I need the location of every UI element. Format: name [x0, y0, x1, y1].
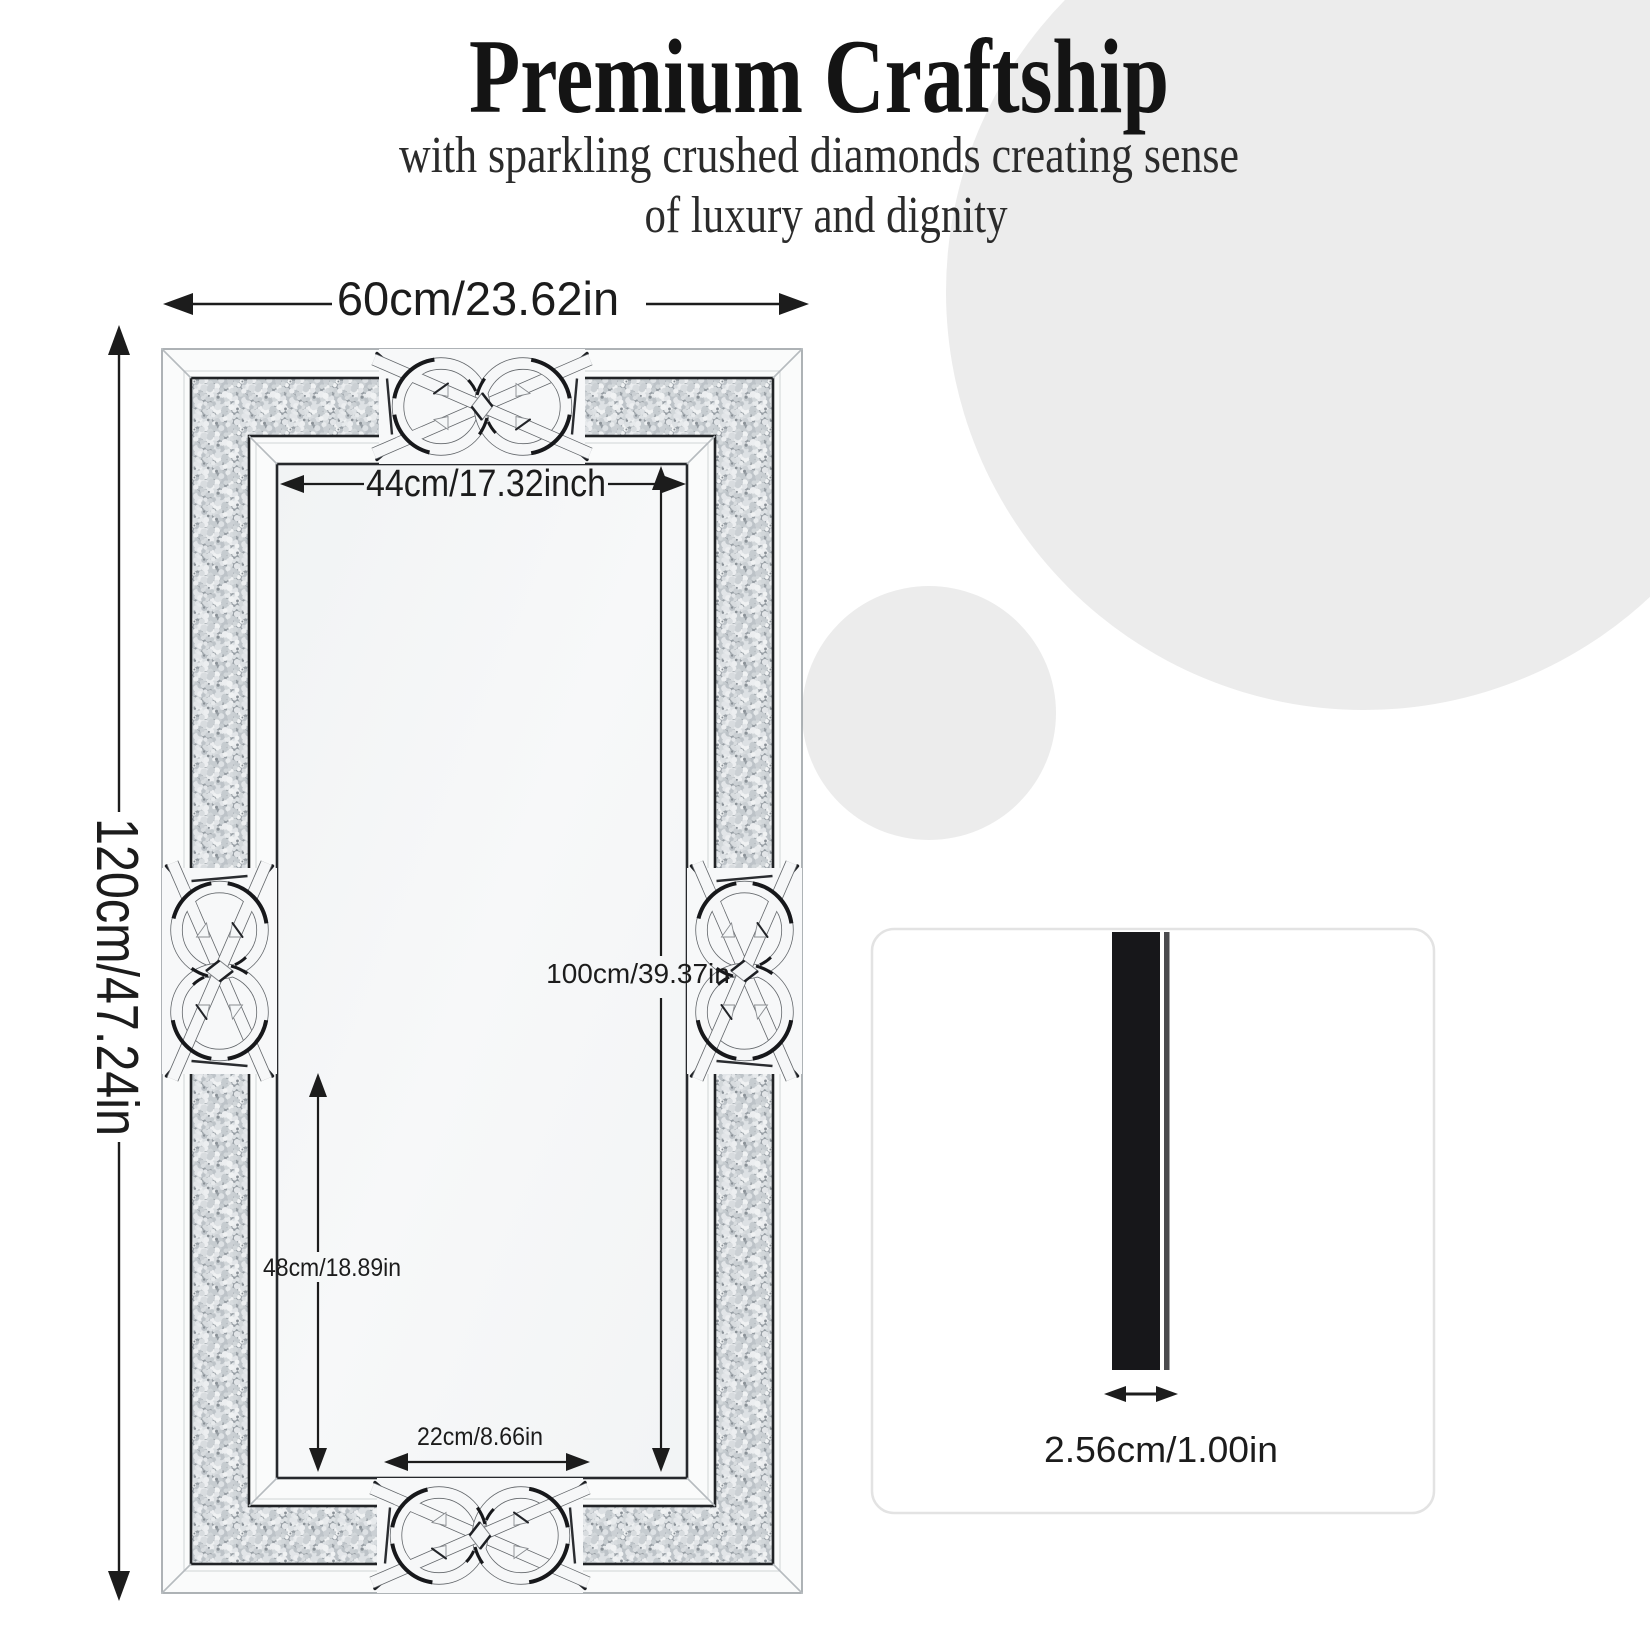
- svg-text:Premium Craftship: Premium Craftship: [469, 18, 1169, 135]
- svg-text:44cm/17.32inch: 44cm/17.32inch: [366, 463, 606, 505]
- svg-text:120cm/47.24in: 120cm/47.24in: [84, 818, 150, 1136]
- svg-text:100cm/39.37in: 100cm/39.37in: [546, 958, 730, 989]
- svg-text:48cm/18.89in: 48cm/18.89in: [263, 1254, 401, 1282]
- svg-text:of luxury and dignity: of luxury and dignity: [645, 187, 1008, 244]
- svg-text:with sparkling crushed diamond: with sparkling crushed diamonds creating…: [399, 127, 1239, 184]
- svg-text:60cm/23.62in: 60cm/23.62in: [337, 272, 619, 325]
- svg-text:22cm/8.66in: 22cm/8.66in: [417, 1423, 543, 1451]
- svg-text:2.56cm/1.00in: 2.56cm/1.00in: [1044, 1429, 1278, 1470]
